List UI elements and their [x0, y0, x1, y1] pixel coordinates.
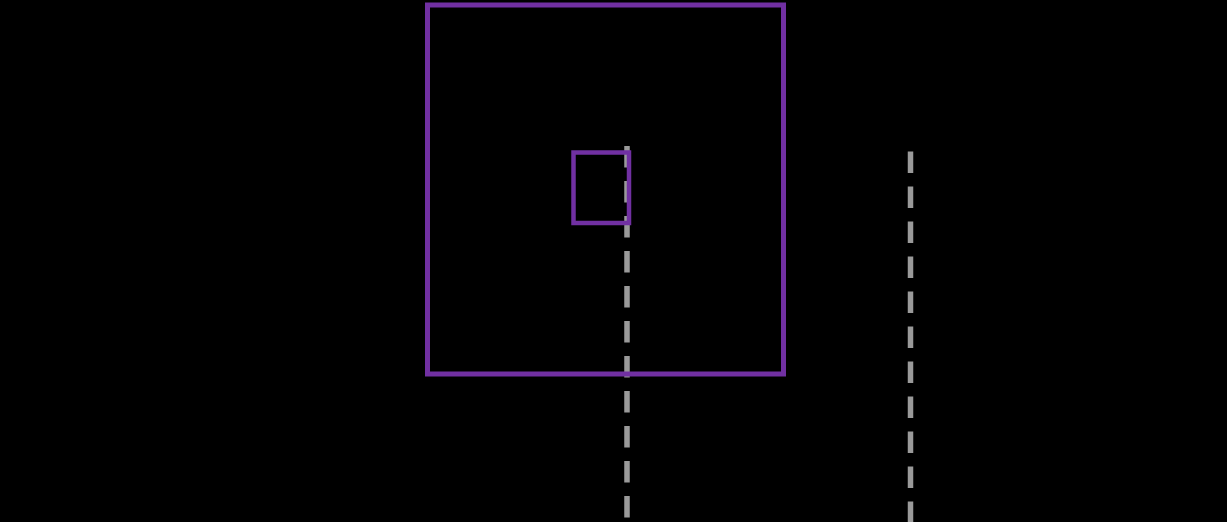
- diagram-canvas: [0, 0, 1227, 522]
- diagram-svg: [0, 0, 1227, 522]
- canvas-background: [0, 0, 1227, 522]
